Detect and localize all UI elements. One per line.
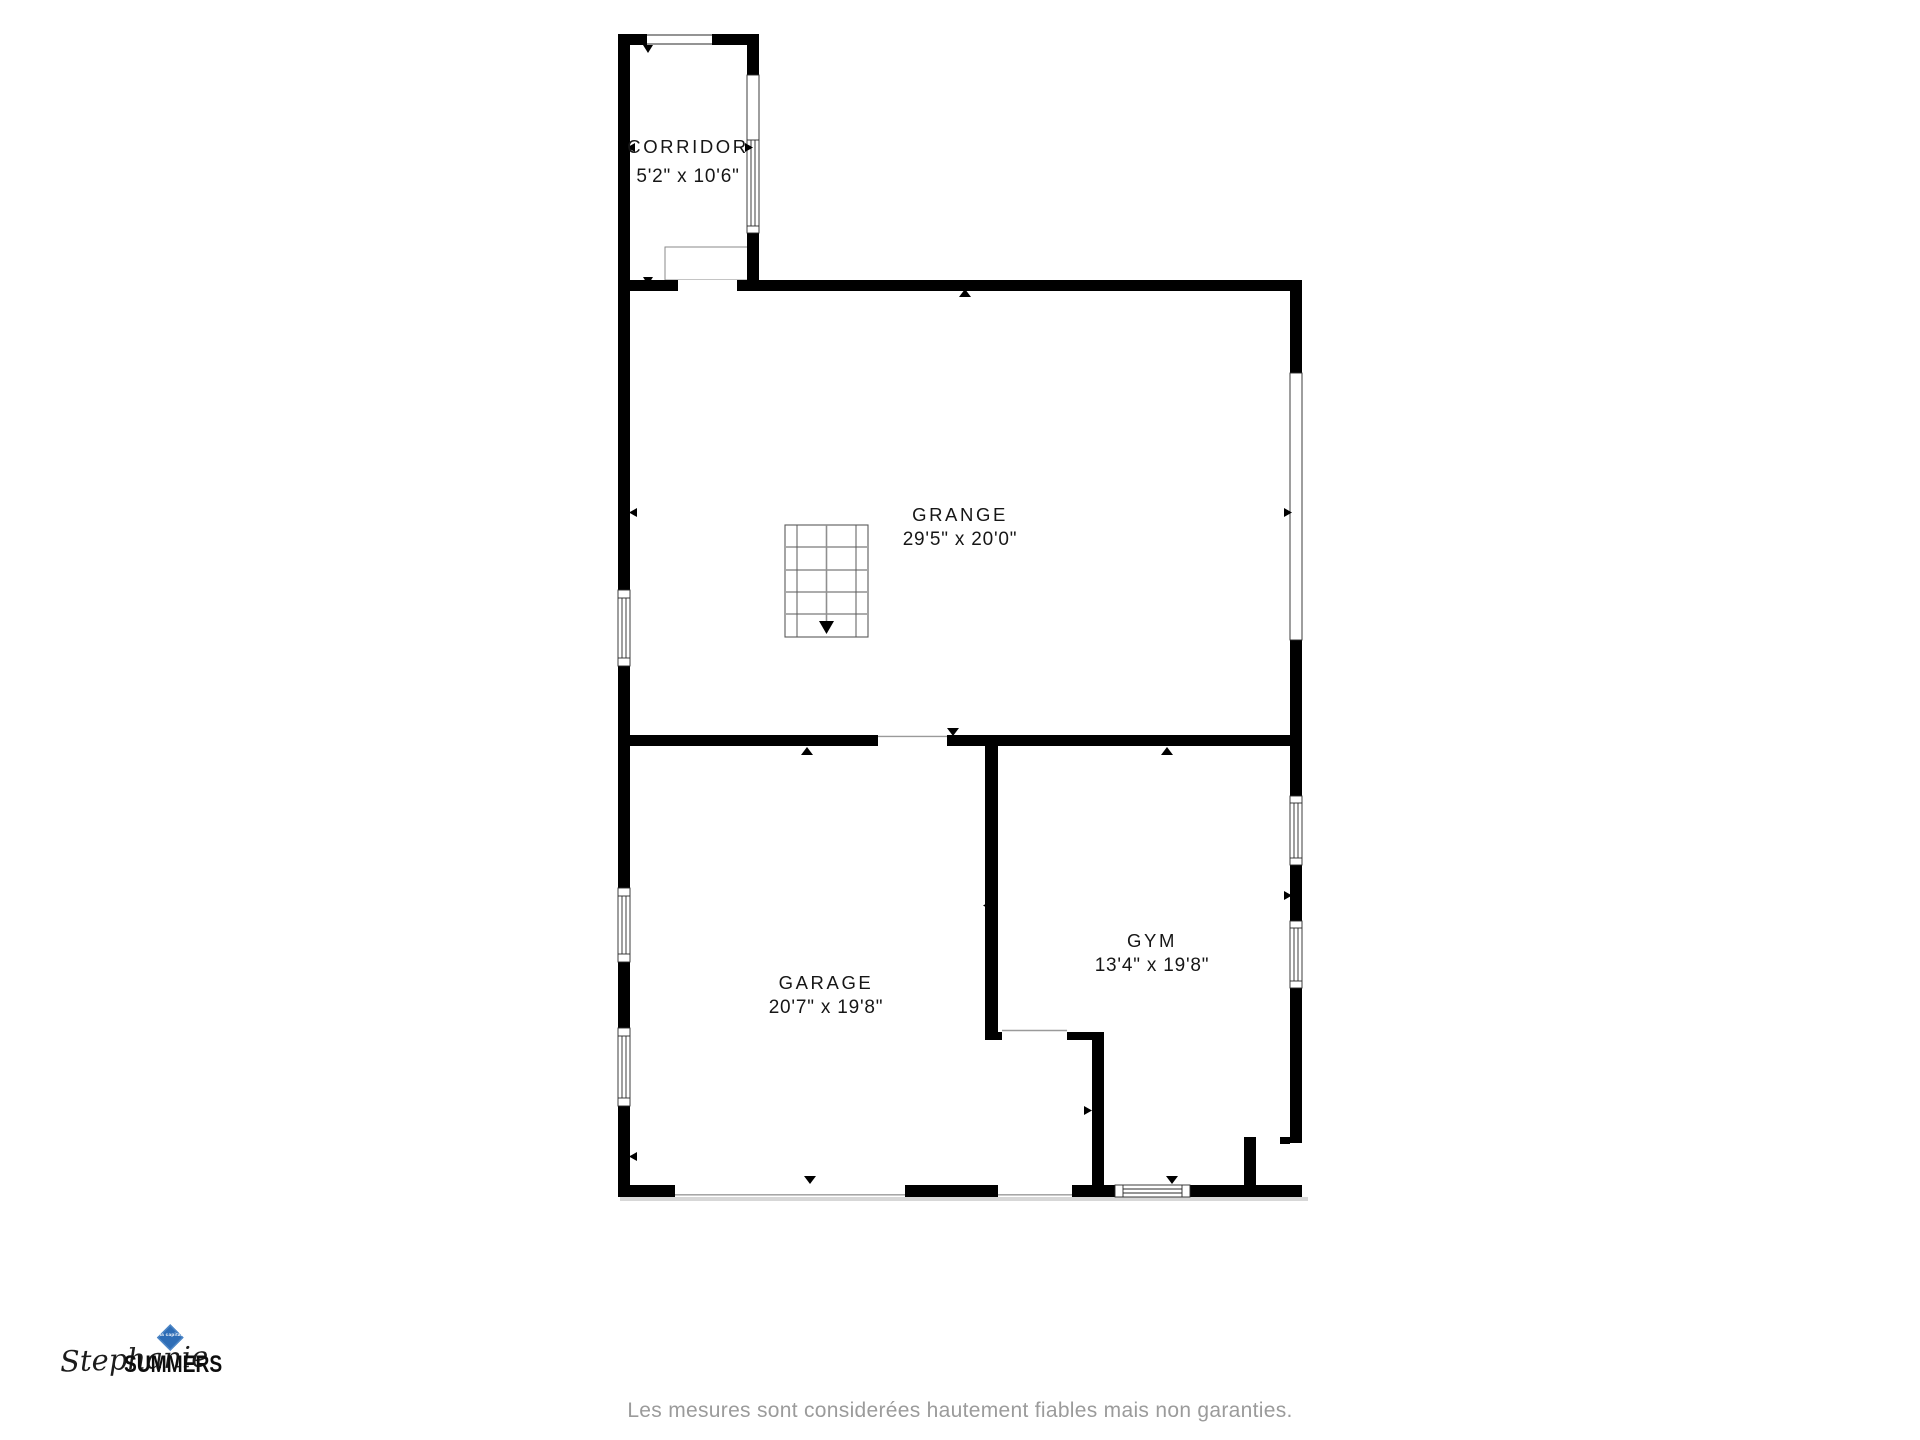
grange-garage-divider-wall	[618, 735, 1302, 746]
gym-entry-opening	[1290, 1143, 1302, 1185]
garage-top-marker-icon	[801, 747, 813, 755]
windows	[618, 34, 1302, 1197]
garage-left-marker-icon	[629, 1152, 637, 1161]
gym-top-marker-icon	[1161, 747, 1173, 755]
brand-name: via capitale	[146, 1332, 196, 1337]
agent-last-name: SUMMERS	[124, 1351, 222, 1379]
dimension-markers	[627, 45, 1292, 1184]
garage-gym-divider-wall-upper	[985, 746, 998, 1040]
gym-left-lower-marker-icon	[1084, 1106, 1092, 1115]
corridor-doorway	[678, 280, 737, 291]
stairs-icon	[785, 525, 868, 637]
room-dims-grange: 29'5" x 20'0"	[903, 529, 1018, 550]
floor-plan: CORRIDOR 5'2" x 10'6" GRANGE 29'5" x 20'…	[0, 0, 1920, 1440]
walls	[618, 34, 1302, 1197]
room-dims-corridor: 5'2" x 10'6"	[636, 166, 739, 187]
gym-bottom-window-icon	[1115, 1185, 1190, 1197]
disclaimer-text: Les mesures sont considerées hautement f…	[0, 1399, 1920, 1423]
gym-right-window1-icon	[1290, 796, 1302, 865]
corridor-top-window-icon	[647, 34, 712, 45]
garage-left-window1-icon	[618, 888, 630, 962]
grange-left-marker-icon	[629, 508, 637, 517]
stair-landing	[665, 247, 750, 280]
gym-bottom-marker-icon	[1166, 1176, 1178, 1184]
grange-left-window-icon	[618, 590, 630, 666]
room-label-gym: GYM	[1127, 930, 1177, 951]
corridor-top-marker-icon	[643, 45, 653, 53]
room-label-garage: GARAGE	[779, 972, 874, 993]
wall-shadow	[620, 1197, 1308, 1201]
entry-nub-wall	[1280, 1137, 1290, 1144]
garage-gym-divider-wall-lower	[1092, 1032, 1104, 1197]
corridor-right-window-icon	[747, 75, 759, 233]
grange-bottom-marker-icon	[947, 728, 959, 736]
grange-right-opening-icon	[1290, 373, 1302, 640]
agent-logo: via capitale Stephanie SUMMERS	[60, 1318, 260, 1388]
room-label-grange: GRANGE	[912, 504, 1008, 525]
entry-stub-wall	[1244, 1137, 1256, 1197]
garage-gym-divider-foot	[985, 1032, 1002, 1040]
room-label-corridor: CORRIDOR	[627, 136, 749, 157]
room-dims-gym: 13'4" x 19'8"	[1095, 955, 1210, 976]
garage-bottom-marker-icon	[804, 1176, 816, 1184]
gym-right-window2-icon	[1290, 921, 1302, 988]
garage-left-window2-icon	[618, 1028, 630, 1106]
room-dims-garage: 20'7" x 19'8"	[769, 997, 884, 1018]
floor-plan-page: CORRIDOR 5'2" x 10'6" GRANGE 29'5" x 20'…	[0, 0, 1920, 1440]
